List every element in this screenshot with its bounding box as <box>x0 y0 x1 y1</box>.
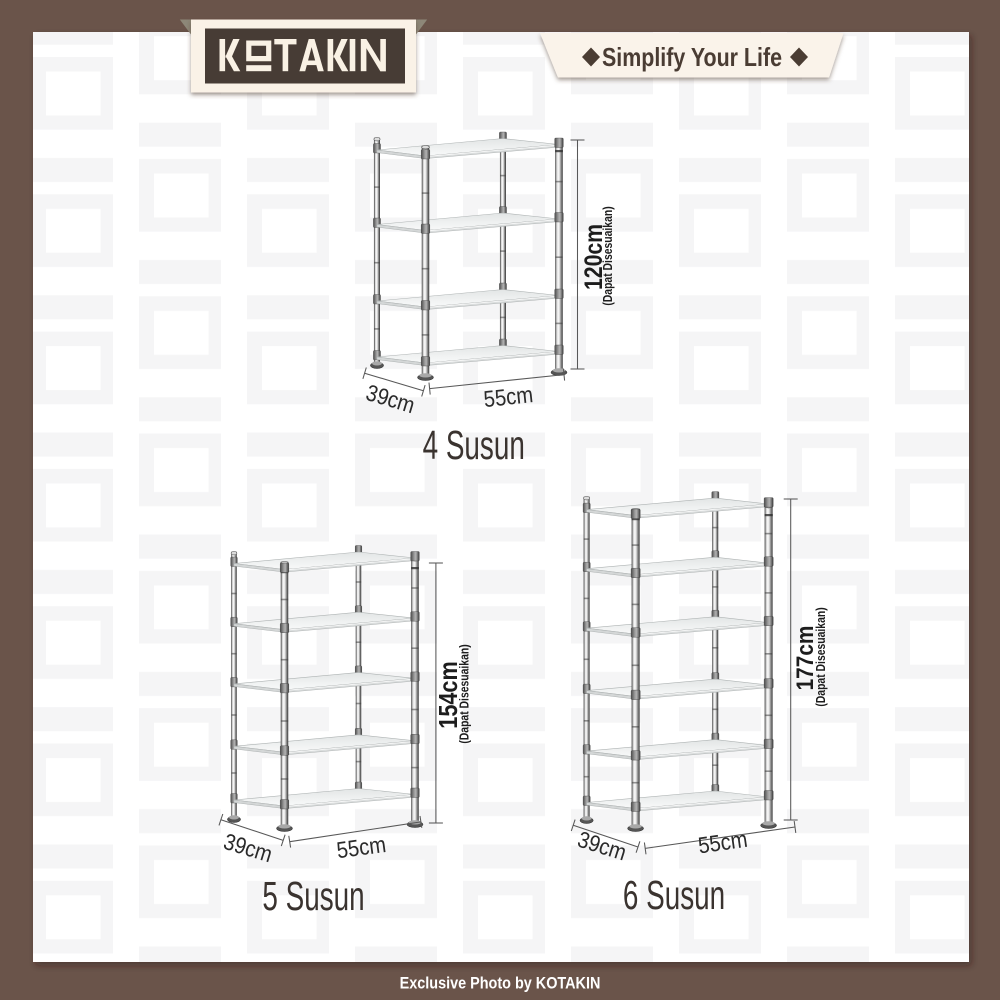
svg-text:5 Susun: 5 Susun <box>262 874 364 920</box>
svg-text:(Dapat Disesuaikan): (Dapat Disesuaikan) <box>814 607 828 706</box>
svg-text:Simplify Your Life: Simplify Your Life <box>602 43 782 71</box>
svg-text:(Dapat Disesuaikan): (Dapat Disesuaikan) <box>457 644 471 743</box>
svg-text:Exclusive Photo by KOTAKIN: Exclusive Photo by KOTAKIN <box>400 975 601 993</box>
svg-text:(Dapat Disesuaikan): (Dapat Disesuaikan) <box>601 206 615 305</box>
svg-text:55cm: 55cm <box>482 381 534 413</box>
svg-text:4 Susun: 4 Susun <box>423 423 525 469</box>
svg-text:6 Susun: 6 Susun <box>623 873 725 919</box>
